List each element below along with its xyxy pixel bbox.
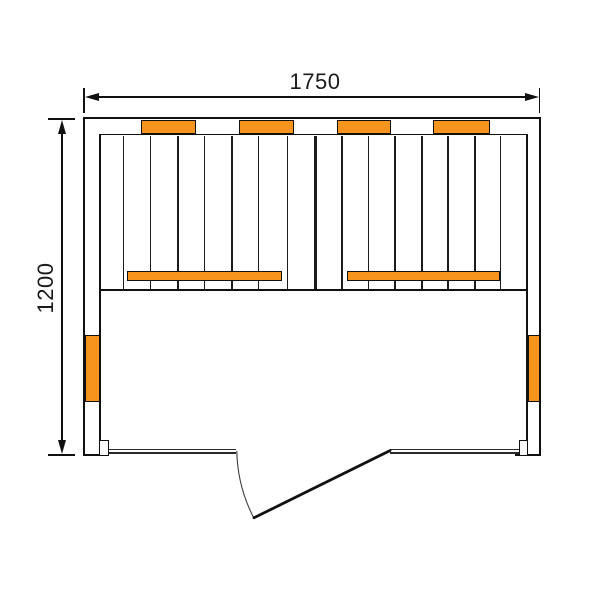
door-leaf <box>254 451 390 518</box>
sauna-floor-plan: 1750 1200 <box>0 0 600 600</box>
door-swing-arc <box>237 451 254 518</box>
door-graphic <box>0 0 600 600</box>
